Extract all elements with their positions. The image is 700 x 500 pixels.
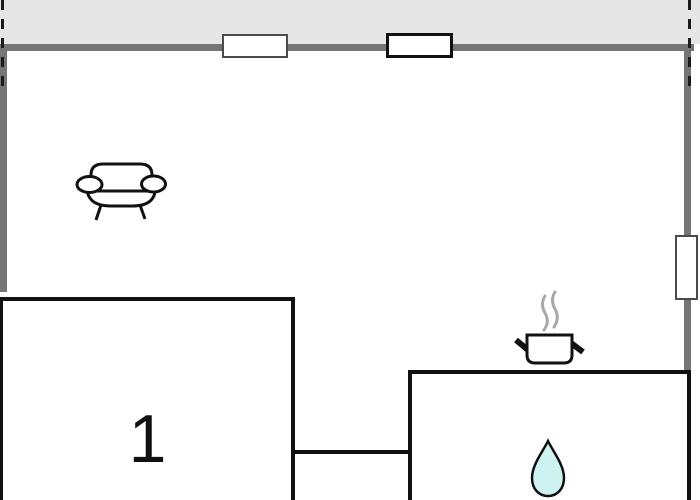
cooking-pot-icon [508, 286, 588, 371]
hallway-wall [293, 450, 410, 454]
steam-lines-icon [543, 292, 558, 330]
water-drop-icon [528, 438, 568, 500]
left-boundary-dashed-line [1, 0, 4, 92]
right-wall [684, 44, 691, 374]
floor-plan: 1 [0, 0, 700, 500]
window-top-right [386, 33, 453, 58]
room-1-label: 1 [0, 405, 295, 473]
window-right-wall [675, 235, 698, 300]
right-boundary-dashed-line [688, 0, 691, 92]
window-top-left [222, 34, 288, 58]
outside-terrace-area [0, 0, 700, 44]
sofa-icon [65, 150, 175, 230]
top-wall [0, 44, 694, 51]
